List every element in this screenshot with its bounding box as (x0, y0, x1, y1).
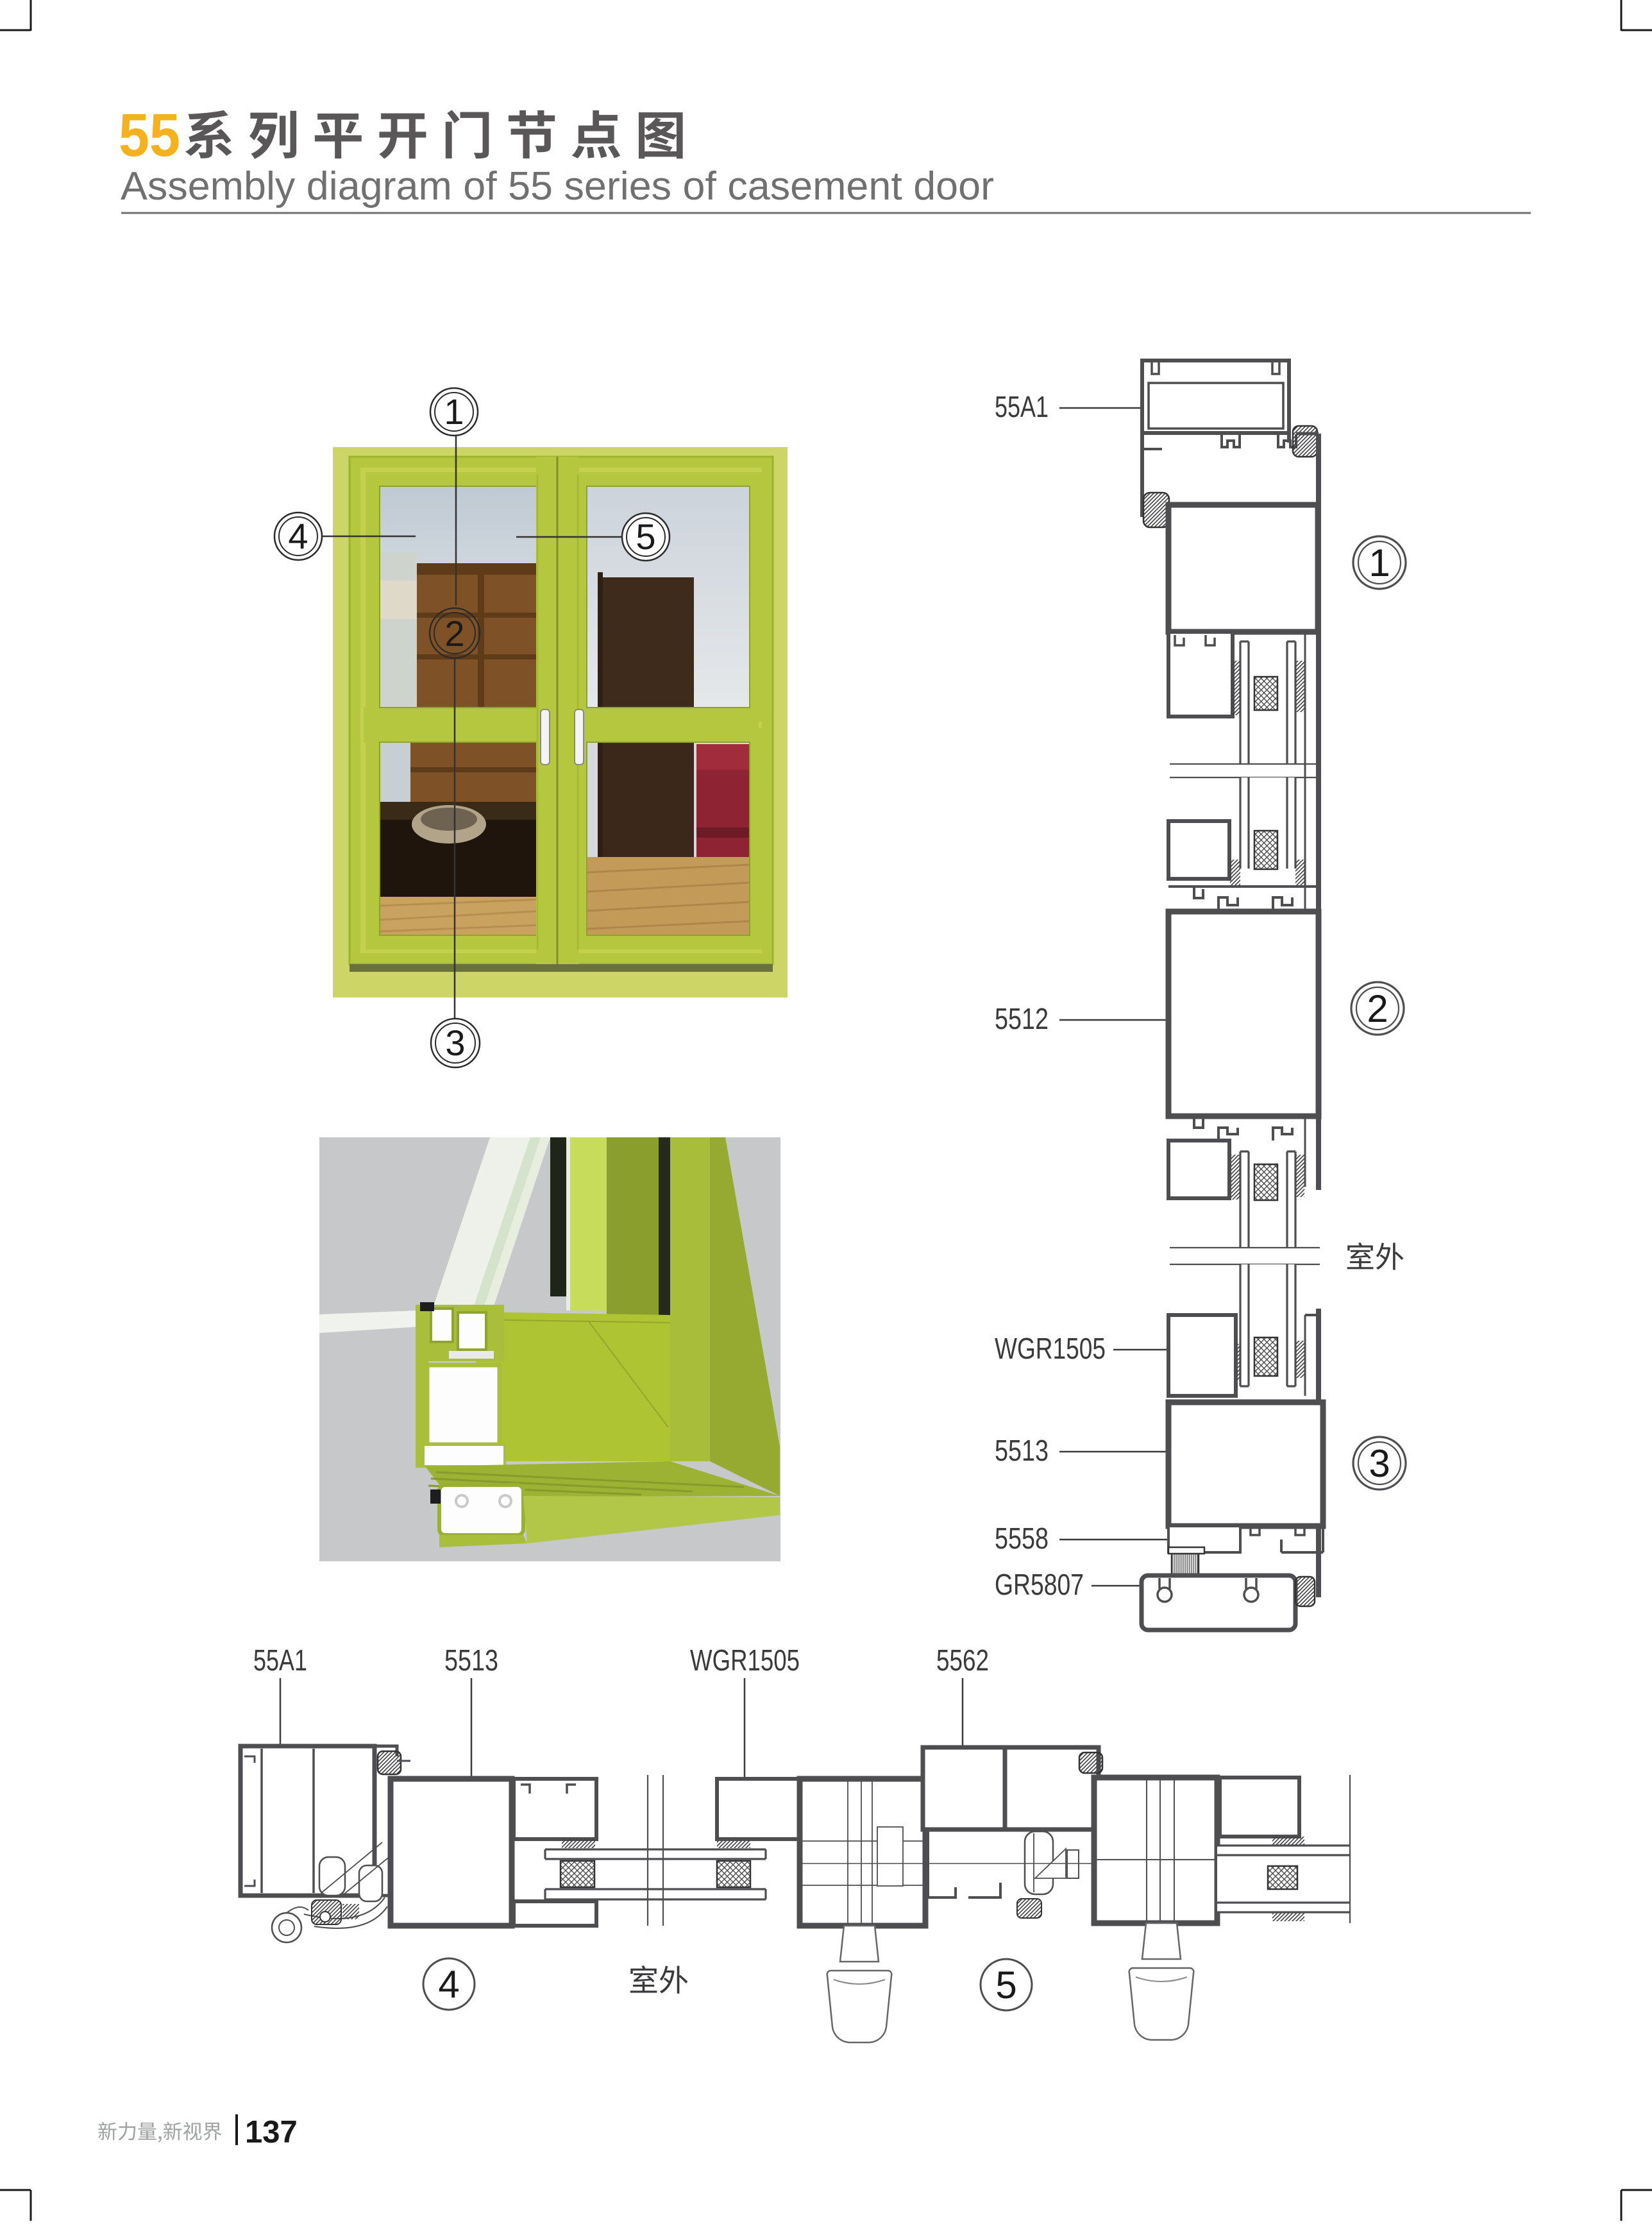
svg-text:3: 3 (1369, 1442, 1390, 1485)
svg-text:5513: 5513 (444, 1643, 498, 1677)
svg-text:3: 3 (445, 1023, 465, 1063)
svg-text:1: 1 (444, 391, 464, 432)
svg-text:55: 55 (119, 101, 180, 169)
svg-text:5: 5 (636, 516, 655, 557)
svg-text:2: 2 (1367, 987, 1388, 1030)
svg-text:5512: 5512 (995, 1002, 1049, 1035)
svg-text:4: 4 (438, 1963, 459, 2006)
svg-text:Assembly diagram of 55 series: Assembly diagram of 55 series of casemen… (121, 164, 994, 208)
svg-text:1: 1 (1369, 541, 1390, 584)
svg-text:55A1: 55A1 (253, 1643, 307, 1677)
svg-text:WGR1505: WGR1505 (995, 1332, 1106, 1365)
svg-text:GR5807: GR5807 (995, 1568, 1084, 1601)
svg-text:55A1: 55A1 (995, 390, 1049, 423)
svg-text:4: 4 (288, 516, 308, 556)
svg-text:137: 137 (245, 2115, 298, 2150)
svg-text:5558: 5558 (995, 1522, 1049, 1555)
svg-text:5: 5 (995, 1964, 1016, 2007)
svg-text:5562: 5562 (936, 1643, 989, 1677)
svg-text:WGR1505: WGR1505 (690, 1643, 800, 1677)
svg-text:2: 2 (444, 613, 464, 654)
svg-text:5513: 5513 (995, 1434, 1049, 1467)
